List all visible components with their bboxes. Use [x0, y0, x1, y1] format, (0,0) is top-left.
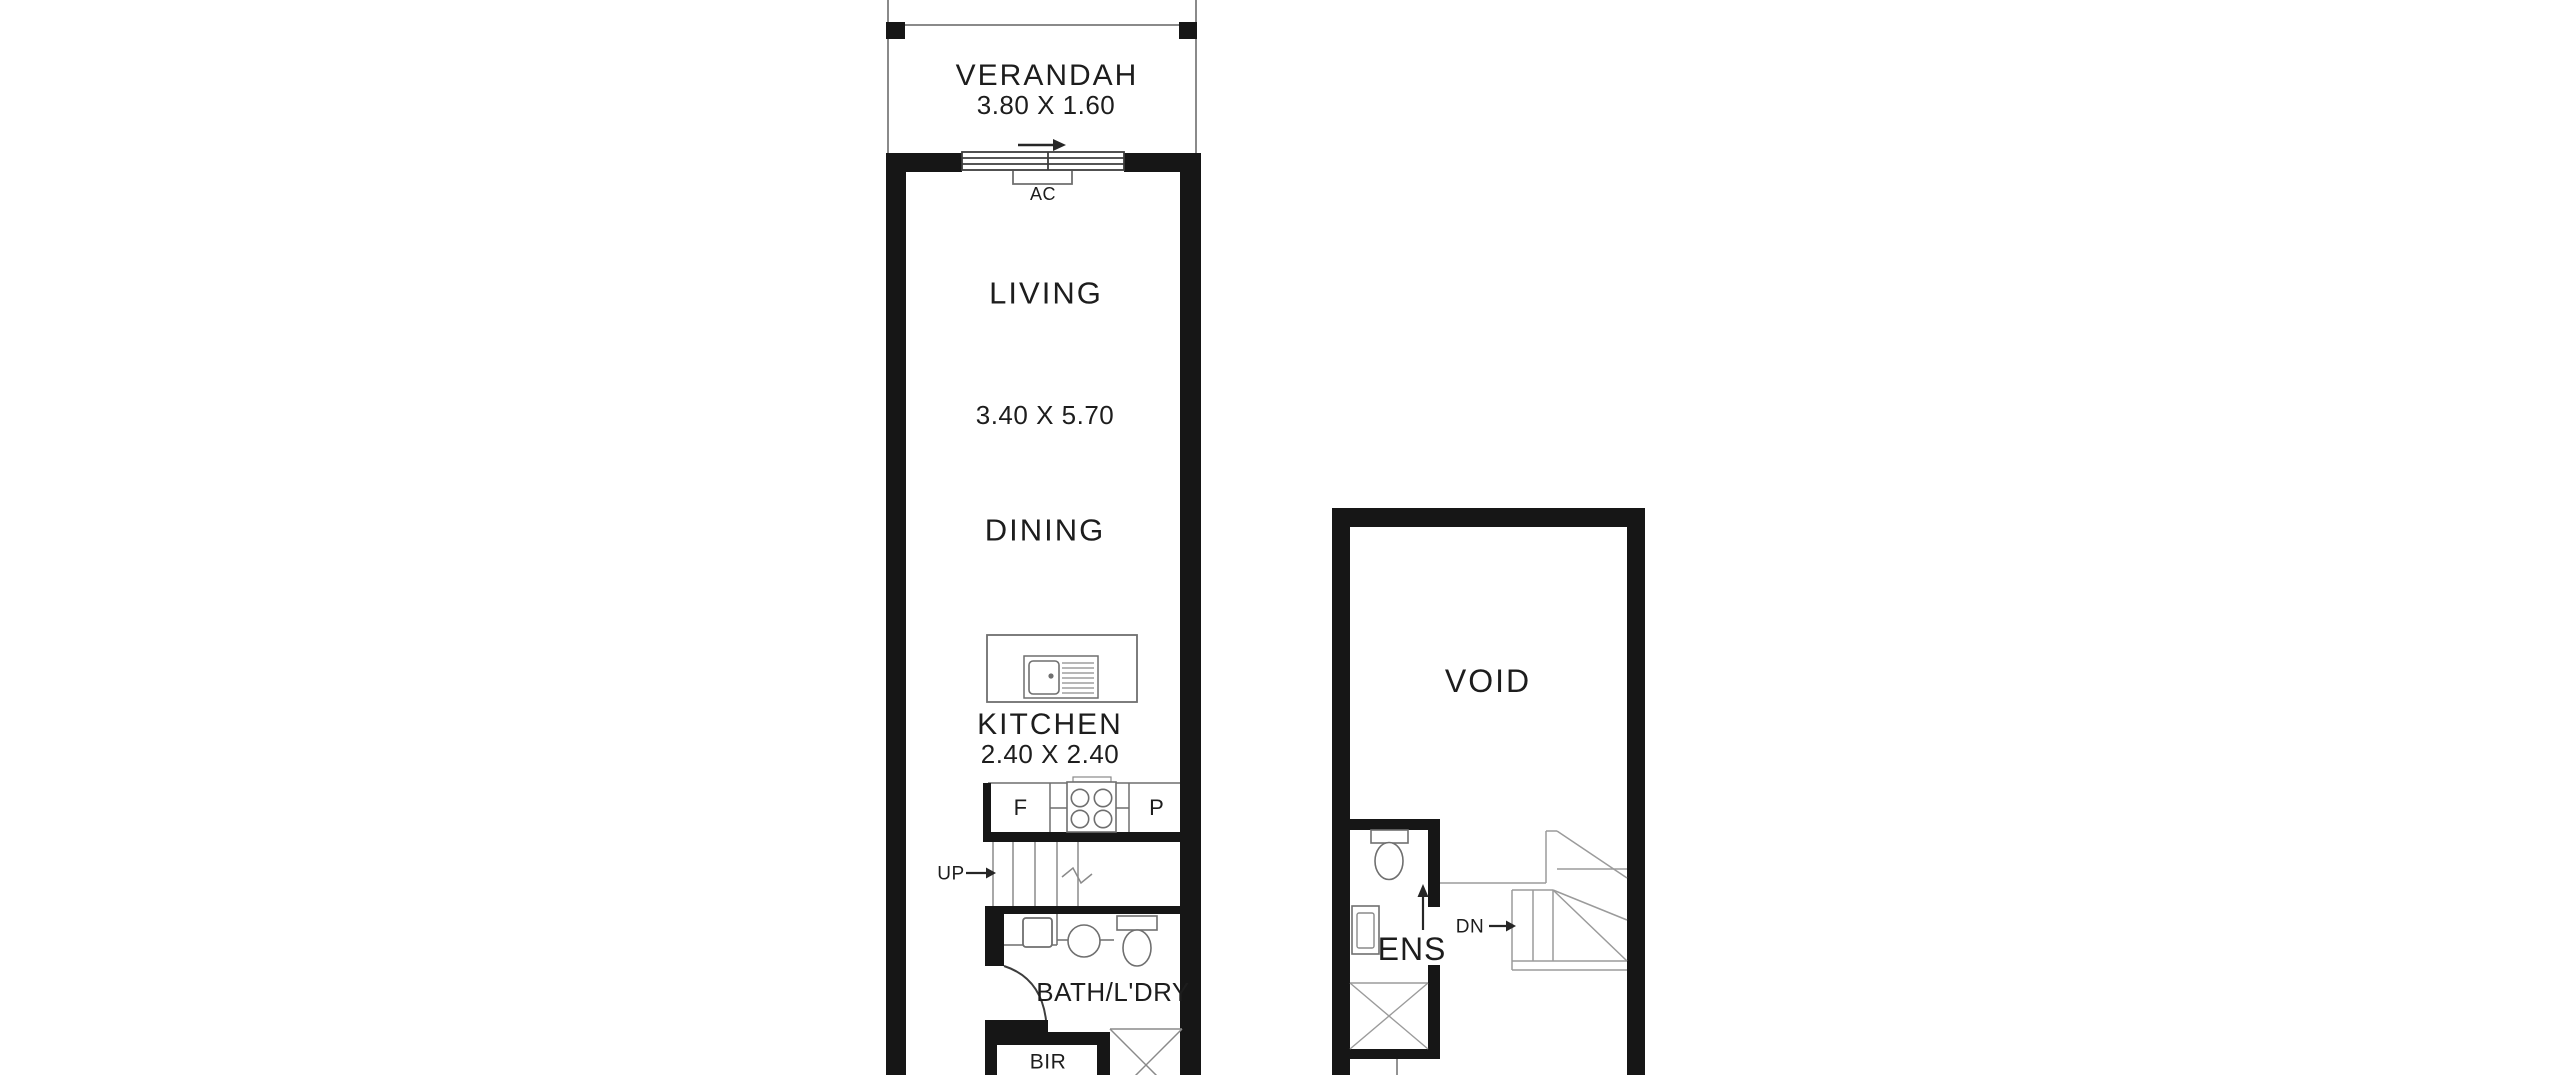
up-arrow: [966, 868, 996, 879]
ac-label: AC: [1030, 185, 1056, 203]
sink-drainer: [1062, 663, 1094, 693]
bath-toilet: [1117, 916, 1157, 966]
right-unit-walls: [1332, 508, 1645, 1075]
pantry-label: P: [1149, 797, 1165, 819]
fridge-label: F: [1014, 797, 1029, 819]
room-label-dining: DINING: [985, 515, 1106, 546]
stairs-down-label: DN: [1456, 918, 1484, 937]
kitchen-island-sink: [987, 635, 1137, 702]
washing-machine: [1004, 914, 1057, 947]
ensuite-toilet: [1371, 830, 1408, 880]
stairs-down-winder: [1440, 831, 1627, 970]
room-label-bir: BIR: [1030, 1052, 1067, 1073]
ac-unit: [1013, 171, 1072, 184]
sliding-door-direction-arrow: [1018, 139, 1066, 151]
ensuite-shower: [1350, 983, 1428, 1049]
floorplan-canvas: VERANDAH 3.80 X 1.60 AC LIVING 3.40 X 5.…: [0, 0, 2560, 1075]
room-label-living: LIVING: [989, 278, 1103, 309]
stairs-up-label: UP: [937, 865, 964, 884]
cooktop: [1067, 777, 1116, 832]
dim-label-living-dining: 3.40 X 5.70: [976, 402, 1115, 428]
sliding-door: [962, 152, 1124, 170]
room-label-void: VOID: [1445, 665, 1531, 697]
floorplan-drawing: [0, 0, 2560, 1075]
bath-laundry-walls: [985, 906, 1201, 1032]
ensuite-entry-arrow: [1418, 884, 1429, 930]
ensuite-basin: [1352, 906, 1379, 954]
stairs-up: [993, 842, 1092, 906]
linen-crossbox: [1110, 1029, 1182, 1075]
room-label-verandah: VERANDAH: [956, 61, 1139, 91]
dim-label-verandah: 3.80 X 1.60: [977, 92, 1116, 118]
dim-label-kitchen: 2.40 X 2.40: [981, 741, 1120, 767]
room-label-ens: ENS: [1378, 933, 1447, 965]
room-label-bath-laundry: BATH/L'DRY: [1036, 979, 1189, 1005]
bath-basin: [1057, 925, 1114, 957]
room-label-kitchen: KITCHEN: [977, 710, 1123, 740]
